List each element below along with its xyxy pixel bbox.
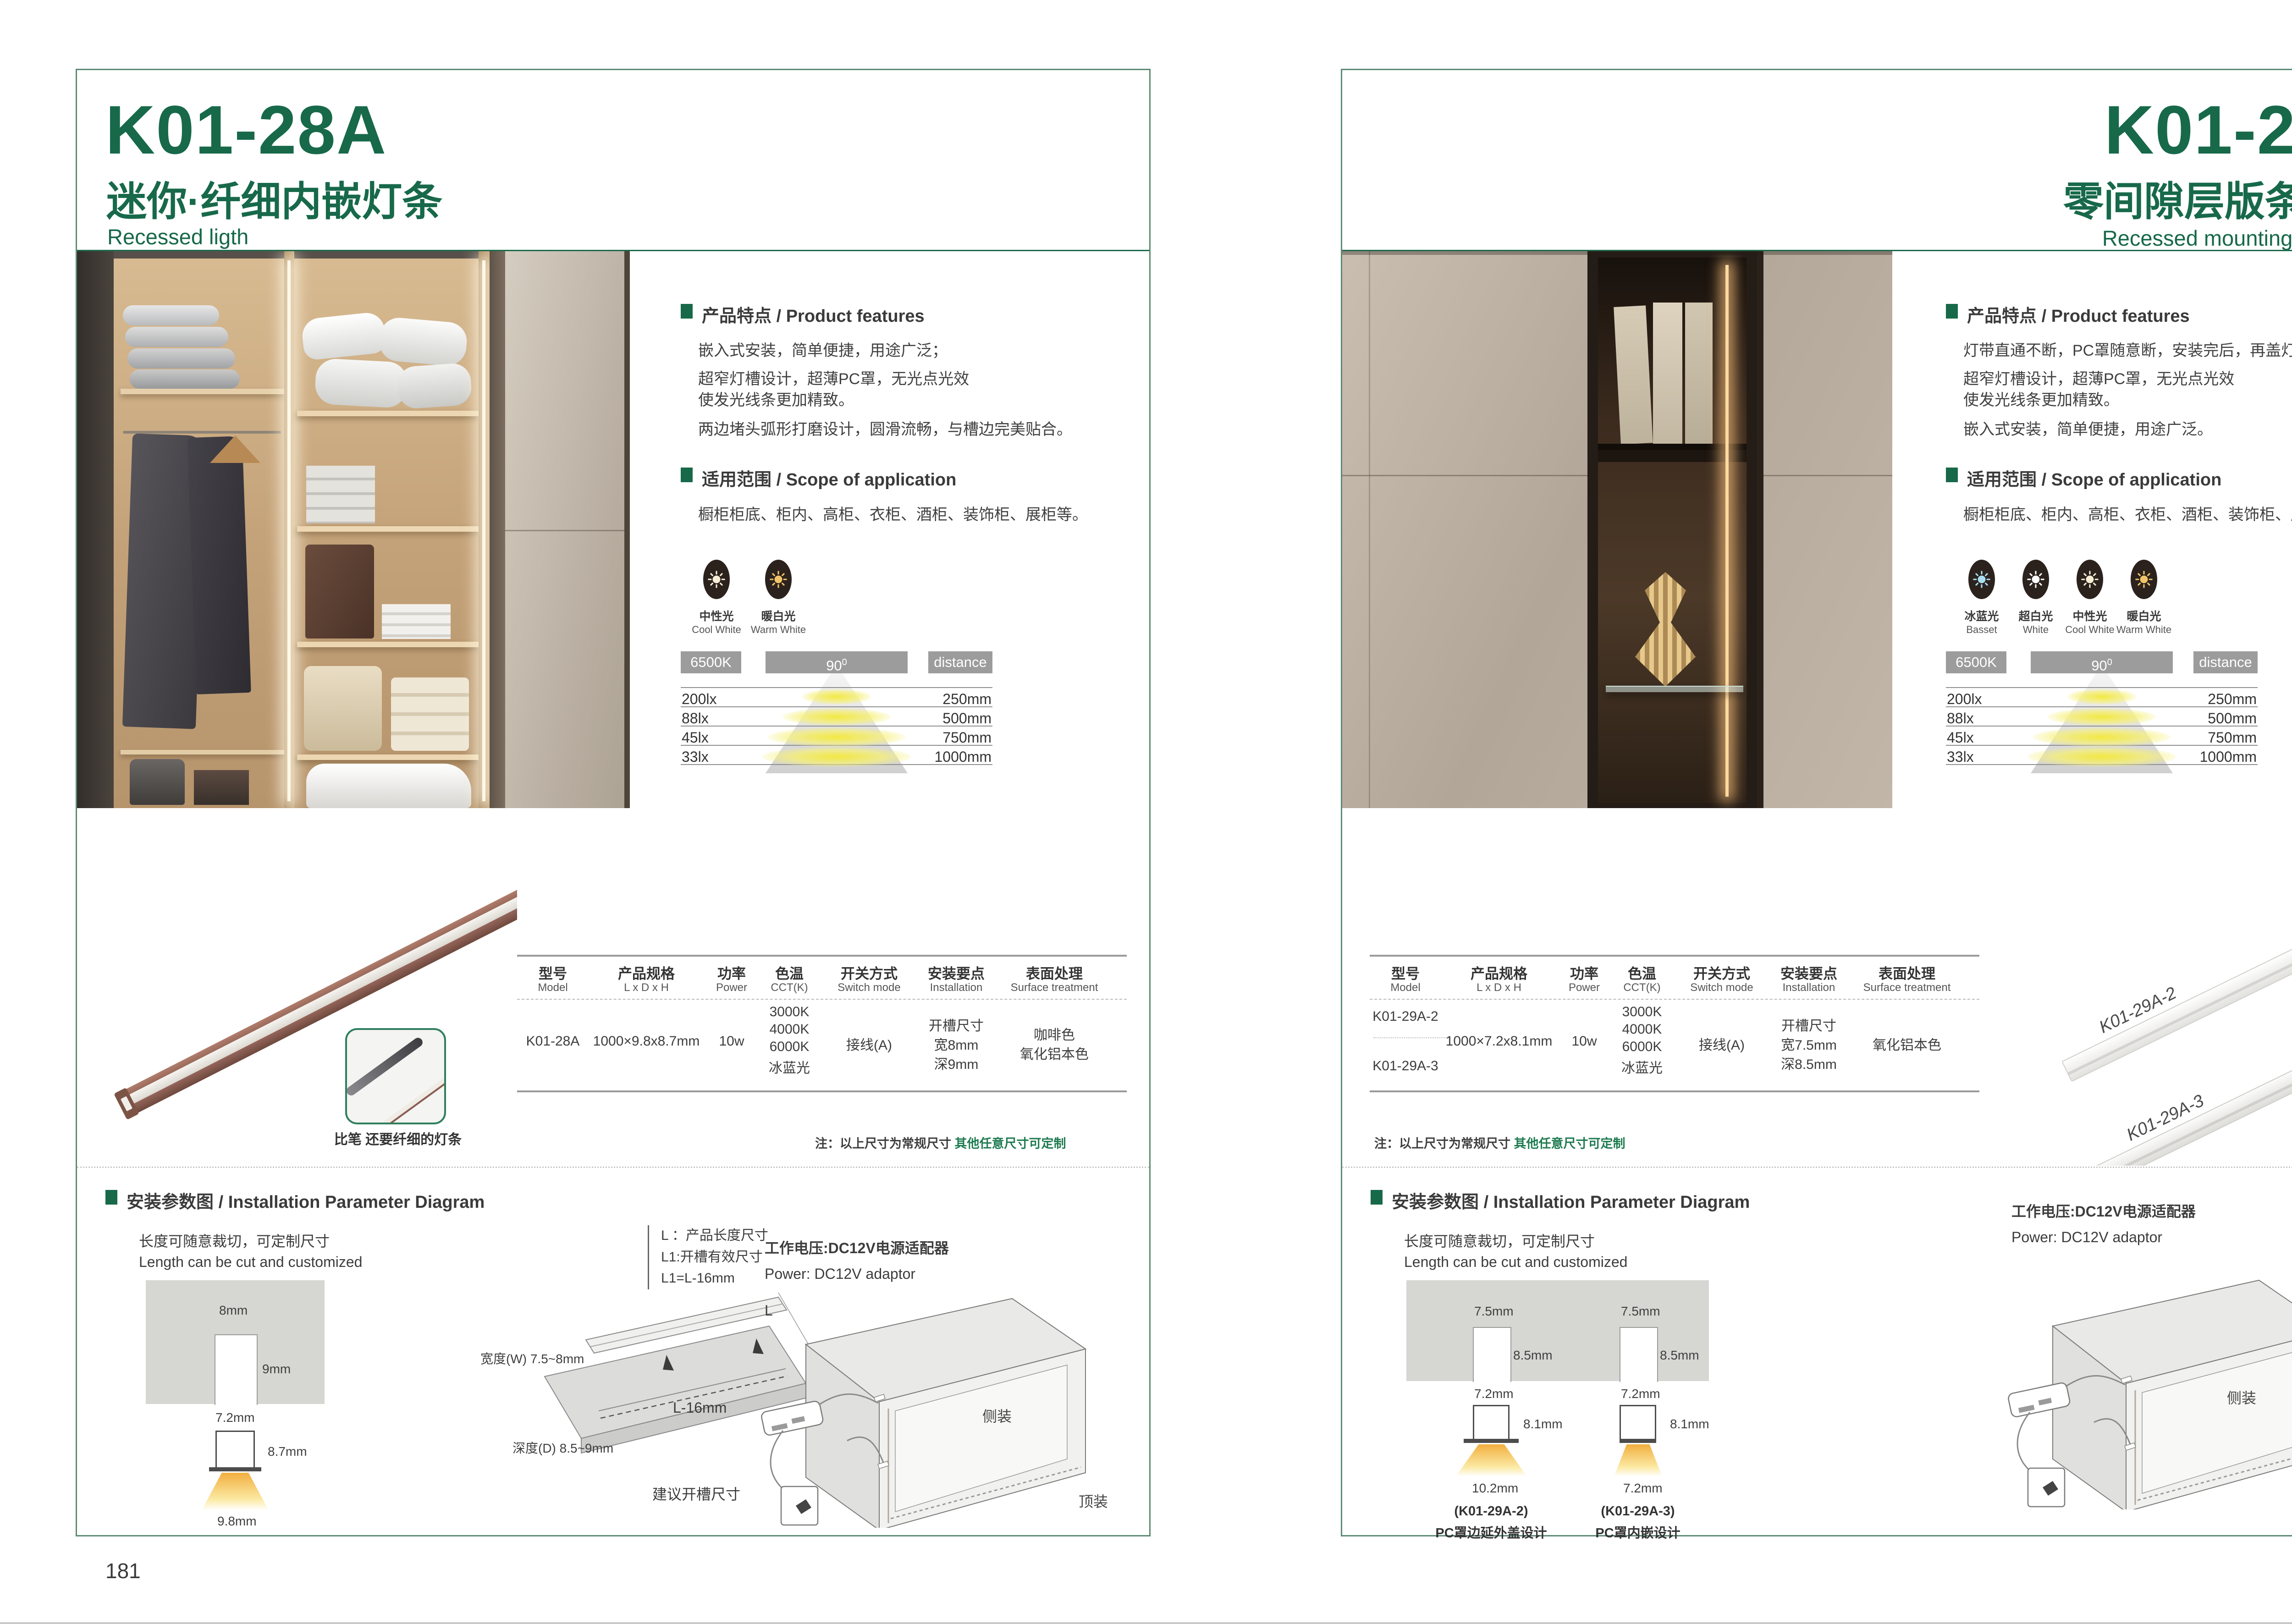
features-header: 产品特点 / Product features — [681, 302, 925, 327]
cell-install: 开槽尺寸 — [1781, 1014, 1836, 1035]
distance-chip: distance — [2193, 651, 2258, 673]
install-header: 安装参数图 / Installation Parameter Diagram — [1371, 1188, 1750, 1213]
length-note-cn: 长度可随意裁切，可定制尺寸 — [139, 1230, 330, 1251]
cell-surface: 咖啡色 — [1034, 1024, 1075, 1044]
dim-slot-width: 8mm — [219, 1303, 248, 1318]
profile-cross-section — [1473, 1405, 1510, 1442]
page-title-right: K01-29A — [2063, 95, 2292, 164]
spec-table-right: 型号 产品规格 功率 色温 开关方式 安装要点 表面处理 Model L x D… — [1370, 955, 1979, 1092]
cell-switch: 接线(A) — [846, 1034, 892, 1054]
light-beam — [1609, 1444, 1667, 1476]
lux-value: 33lx — [1947, 749, 1974, 765]
distance-value: 500mm — [2183, 710, 2257, 727]
side-mount-label: 侧装 — [2227, 1387, 2256, 1408]
lux-value: 200lx — [682, 691, 717, 708]
duvet — [306, 764, 471, 808]
profile-cross-section — [215, 1431, 255, 1471]
panel-seam — [1369, 251, 1370, 808]
cell-install: 深8.5mm — [1781, 1053, 1837, 1073]
distance-value: 250mm — [918, 691, 992, 708]
cell-power: 10w — [719, 1034, 744, 1049]
led-strip-glow — [1725, 265, 1729, 797]
bullet-icon — [1371, 1190, 1383, 1205]
pen-image — [345, 1036, 424, 1097]
hanging-rod — [123, 431, 281, 434]
section-desc-caption: PC罩边延外盖设计 — [1435, 1522, 1547, 1541]
pillow — [301, 311, 387, 361]
bullet-icon — [681, 468, 693, 482]
cool-white-light-icon — [2077, 560, 2103, 599]
side-mount-label: 侧装 — [982, 1405, 1012, 1426]
section-model-caption: (K01-29A-3) — [1601, 1504, 1675, 1519]
sheet-bottom-edge — [0, 1622, 2292, 1624]
glass-shelf — [1606, 686, 1743, 692]
ice-blue-light-icon — [1968, 560, 1995, 599]
cell-cct: 冰蓝光 — [1621, 1057, 1663, 1077]
cct-chip: 6500K — [1946, 651, 2006, 673]
pillow — [378, 316, 468, 367]
distance-value: 500mm — [918, 710, 992, 727]
product-visual-right: K01-29A-2 K01-29A-3 — [2021, 849, 2292, 1166]
length-note-en: Length can be cut and customized — [139, 1254, 362, 1271]
cell-cct: 4000K — [1622, 1022, 1662, 1037]
page-subtitle-cn-right: 零间隙层版条形灯 — [2063, 182, 2292, 222]
light-spot — [768, 727, 905, 747]
shelf — [121, 750, 286, 754]
profile-flange — [209, 1467, 261, 1471]
canvas-bag — [304, 666, 382, 751]
towel-roll — [125, 327, 228, 347]
install-title: 安装参数图 / Installation Parameter Diagram — [1392, 1188, 1750, 1213]
door-edge — [624, 251, 630, 808]
page-subtitle-cn-left: 迷你·纤细内嵌灯条 — [106, 182, 442, 222]
dim-light-width: 7.2mm — [1623, 1481, 1663, 1496]
dim-slot-width: 7.5mm — [1474, 1304, 1514, 1319]
cell-power: 10w — [1571, 1034, 1597, 1049]
warm-white-light-icon — [765, 560, 792, 599]
light-spot — [762, 747, 911, 767]
install-title: 安装参数图 / Installation Parameter Diagram — [127, 1188, 485, 1213]
photometry-chart: 6500K 900 distance 200lx 88lx 45lx 33lx … — [1946, 651, 2258, 789]
cabinet-photo — [1342, 251, 1892, 808]
folded-blankets — [391, 677, 469, 751]
niche-divider — [1598, 450, 1747, 462]
scope-header: 适用范围 / Scope of application — [681, 465, 956, 490]
lux-value: 33lx — [682, 749, 709, 765]
distance-chip: distance — [928, 651, 992, 673]
cell-install: 深9mm — [934, 1053, 979, 1073]
lux-value: 88lx — [682, 710, 709, 727]
profile-flange-wide — [1464, 1439, 1519, 1443]
photometry-chart: 6500K 900 distance 200lx 88lx 45lx 33lx … — [681, 651, 992, 789]
dim-profile-height: 8.7mm — [268, 1444, 307, 1459]
profile-flange-flush — [1620, 1439, 1656, 1443]
page-subtitle-en-right: Recessed mounting LED light — [2063, 227, 2292, 249]
towel-roll — [130, 369, 240, 389]
box — [194, 770, 249, 805]
lux-value: 200lx — [1947, 691, 1982, 708]
groove-notch — [1620, 1327, 1658, 1382]
pillow — [397, 363, 473, 410]
cell-cct: 3000K — [770, 1004, 810, 1020]
cabinet-mount-diagram — [1984, 1262, 2292, 1509]
install-header: 安装参数图 / Installation Parameter Diagram — [105, 1188, 485, 1213]
hanging-coat — [187, 436, 251, 694]
scope-text: 橱柜柜底、柜内、高柜、衣柜、酒柜、装饰柜、展柜等。 — [1963, 505, 2292, 526]
table-note: 注：以上尺寸为常规尺寸 其他任意尺寸可定制 — [815, 1134, 1066, 1151]
cell-install: 开槽尺寸 — [929, 1014, 984, 1035]
feature-line: 嵌入式安装，简单便捷，用途广泛； — [698, 341, 948, 362]
shelf — [121, 389, 286, 394]
angle-chip: 900 — [766, 651, 908, 673]
length-note-en: Length can be cut and customized — [1404, 1254, 1627, 1271]
length-legend: L ：产品长度尺寸 L1:开槽有效尺寸 L1=L-16mm — [648, 1225, 768, 1289]
groove-notch — [1473, 1327, 1511, 1382]
cell-surface: 氧化铝本色 — [1873, 1034, 1941, 1054]
catalog-spread: K01-28A 迷你·纤细内嵌灯条 Recessed ligth — [0, 0, 2292, 1624]
lux-value: 45lx — [682, 729, 709, 746]
folded-linens — [306, 466, 375, 523]
page-header-right: K01-29A 零间隙层版条形灯 Recessed mounting LED l… — [2063, 95, 2292, 249]
light-spot — [2028, 747, 2176, 767]
dim-light-width: 9.8mm — [217, 1514, 257, 1529]
section-desc-caption: PC罩内嵌设计 — [1595, 1522, 1680, 1541]
photo-dark-edge — [77, 251, 114, 808]
cell-spec: 1000×9.8x8.7mm — [593, 1034, 700, 1049]
feature-line: 超窄灯槽设计，超薄PC罩，无光点光效 — [1963, 369, 2234, 390]
niche-shelf — [1598, 444, 1747, 450]
groove-notch — [215, 1334, 258, 1405]
dim-slot-bottom: 7.2mm — [1621, 1387, 1660, 1401]
light-spot — [802, 689, 871, 705]
light-beam — [1456, 1444, 1527, 1476]
pillow — [314, 358, 408, 408]
distance-value: 1000mm — [2183, 749, 2257, 765]
dim-profile-height: 8.1mm — [1670, 1417, 1709, 1431]
leather-satchel — [305, 545, 374, 639]
cell-install: 宽8mm — [934, 1034, 979, 1054]
photo-top-edge — [1342, 251, 1892, 255]
dim-light-width: 10.2mm — [1472, 1481, 1518, 1496]
book — [1685, 303, 1713, 444]
light-spot — [2033, 727, 2171, 747]
cell-cct: 6000K — [1622, 1039, 1662, 1055]
door-frame — [490, 251, 505, 808]
white-light-icon — [2022, 560, 2049, 599]
board-depth-label: 深度(D) 8.5~9mm — [512, 1438, 613, 1457]
shelf — [297, 526, 479, 532]
page-subtitle-en-left: Recessed ligth — [107, 226, 248, 248]
book — [1653, 303, 1682, 444]
dim-slot-width: 7.5mm — [1621, 1304, 1660, 1319]
section-divider — [1342, 1167, 2292, 1168]
product-caption: 比笔 还要纤细的灯条 — [334, 1128, 462, 1148]
dim-slot-bottom: 7.2mm — [215, 1410, 255, 1425]
cell-switch: 接线(A) — [1699, 1034, 1745, 1054]
features-title: 产品特点 / Product features — [1967, 302, 2190, 327]
cool-white-light-icon — [703, 560, 730, 599]
shelf — [297, 642, 479, 647]
board-width-label: 宽度(W) 7.5~8mm — [480, 1349, 584, 1367]
warm-white-light-icon — [2131, 560, 2157, 599]
towel-roll — [123, 305, 219, 325]
page-title-left: K01-28A — [105, 95, 387, 164]
led-strip-glow — [287, 260, 291, 801]
distance-value: 750mm — [918, 729, 992, 746]
light-spot — [782, 708, 891, 726]
length-note-cn: 长度可随意裁切，可定制尺寸 — [1404, 1230, 1595, 1251]
led-bar — [2061, 849, 2292, 1082]
led-profile-bar — [117, 886, 517, 1118]
cell-surface: 氧化铝本色 — [1020, 1043, 1089, 1063]
niche-edge — [1757, 251, 1763, 808]
shelf — [297, 411, 479, 416]
towel-roll — [127, 348, 235, 369]
power-spec-cn: 工作电压:DC12V电源适配器 — [2011, 1200, 2196, 1221]
bullet-icon — [1946, 304, 1958, 319]
cell-model: K01-29A-2 — [1372, 1009, 1438, 1024]
dim-slot-depth: 8.5mm — [1660, 1348, 1699, 1363]
led-strip-glow — [482, 260, 485, 801]
page-left: K01-28A 迷你·纤细内嵌灯条 Recessed ligth — [76, 69, 1151, 1536]
power-spec-cn: 工作电压:DC12V电源适配器 — [765, 1237, 949, 1258]
scope-header: 适用范围 / Scope of application — [1946, 465, 2221, 490]
scope-title: 适用范围 / Scope of application — [702, 465, 956, 490]
light-beam — [202, 1473, 269, 1510]
bullet-icon — [105, 1190, 117, 1205]
light-label-cn: 暖白光 — [2107, 607, 2181, 624]
board-caption: 建议开槽尺寸 — [652, 1483, 740, 1504]
product-visual-left — [91, 817, 517, 1161]
light-spot — [2048, 708, 2156, 726]
page-number-left: 181 — [105, 1558, 141, 1583]
dim-slot-depth: 9mm — [262, 1362, 291, 1376]
cell-cct: 6000K — [770, 1039, 810, 1055]
cell-spec: 1000×7.2x8.1mm — [1446, 1034, 1553, 1049]
light-label-cn: 暖白光 — [742, 607, 815, 624]
section-divider — [77, 1167, 1149, 1168]
power-spec-en: Power: DC12V adaptor — [2011, 1229, 2162, 1246]
section-model-caption: (K01-29A-2) — [1454, 1504, 1528, 1519]
folded-towels — [382, 604, 451, 639]
light-label-en: Warm White — [2103, 624, 2185, 636]
distance-value: 750mm — [2183, 729, 2257, 746]
board-length2-label: L-16mm — [673, 1399, 727, 1416]
distance-value: 250mm — [2183, 691, 2257, 708]
pen-comparison-inset — [345, 1028, 446, 1124]
light-label-en: Warm White — [737, 624, 820, 636]
feature-line: 灯带直通不断，PC罩随意断，安装完后，再盖灯罩； — [1963, 341, 2292, 362]
cell-model: K01-29A-3 — [1372, 1058, 1438, 1074]
page-right: K01-29A 零间隙层版条形灯 Recessed mounting LED l… — [1341, 69, 2292, 1536]
distance-value: 1000mm — [918, 749, 992, 765]
dim-slot-bottom: 7.2mm — [1474, 1387, 1514, 1401]
cell-cct: 4000K — [770, 1022, 810, 1037]
feature-line: 嵌入式安装，简单便捷，用途广泛。 — [1963, 419, 2213, 440]
spec-table-left: 型号 产品规格 功率 色温 开关方式 安装要点 表面处理 Model L x D… — [517, 955, 1127, 1092]
lux-value: 45lx — [1947, 729, 1974, 746]
shelf — [297, 754, 479, 760]
cell-cct: 冰蓝光 — [769, 1057, 810, 1077]
cell-model: K01-28A — [526, 1034, 580, 1049]
light-spot — [2067, 689, 2136, 705]
feature-line: 使发光线条更加精致。 — [1963, 390, 2119, 411]
profile-cross-section — [1620, 1405, 1656, 1442]
cell-install: 宽7.5mm — [1781, 1034, 1837, 1054]
cell-cct: 3000K — [1622, 1004, 1662, 1020]
groove-panel-diagram — [1406, 1280, 1709, 1381]
features-title: 产品特点 / Product features — [702, 302, 925, 327]
angle-chip: 900 — [2031, 651, 2173, 673]
dim-profile-height: 8.1mm — [1523, 1417, 1563, 1431]
bullet-icon — [1946, 468, 1958, 482]
table-note: 注：以上尺寸为常规尺寸 其他任意尺寸可定制 — [1374, 1134, 1625, 1151]
dim-slot-depth: 8.5mm — [1513, 1348, 1553, 1363]
leather-pouch — [130, 759, 185, 805]
scope-title: 适用范围 / Scope of application — [1967, 465, 2221, 490]
top-mount-label: 顶装 — [1079, 1490, 1108, 1511]
scope-text: 橱柜柜底、柜内、高柜、衣柜、酒柜、装饰柜、展柜等。 — [698, 505, 1088, 526]
mini-led-strip — [374, 1069, 446, 1124]
feature-line: 使发光线条更加精致。 — [698, 390, 854, 411]
lux-value: 88lx — [1947, 710, 1974, 727]
feature-line: 两边堵头弧形打磨设计，圆滑流畅，与槽边完美贴合。 — [698, 419, 1072, 440]
cct-chip: 6500K — [681, 651, 741, 673]
features-header: 产品特点 / Product features — [1946, 302, 2190, 327]
bullet-icon — [681, 304, 693, 319]
feature-line: 超窄灯槽设计，超薄PC罩，无光点光效 — [698, 369, 969, 390]
wardrobe-photo — [77, 251, 630, 808]
door-seam — [505, 530, 630, 531]
